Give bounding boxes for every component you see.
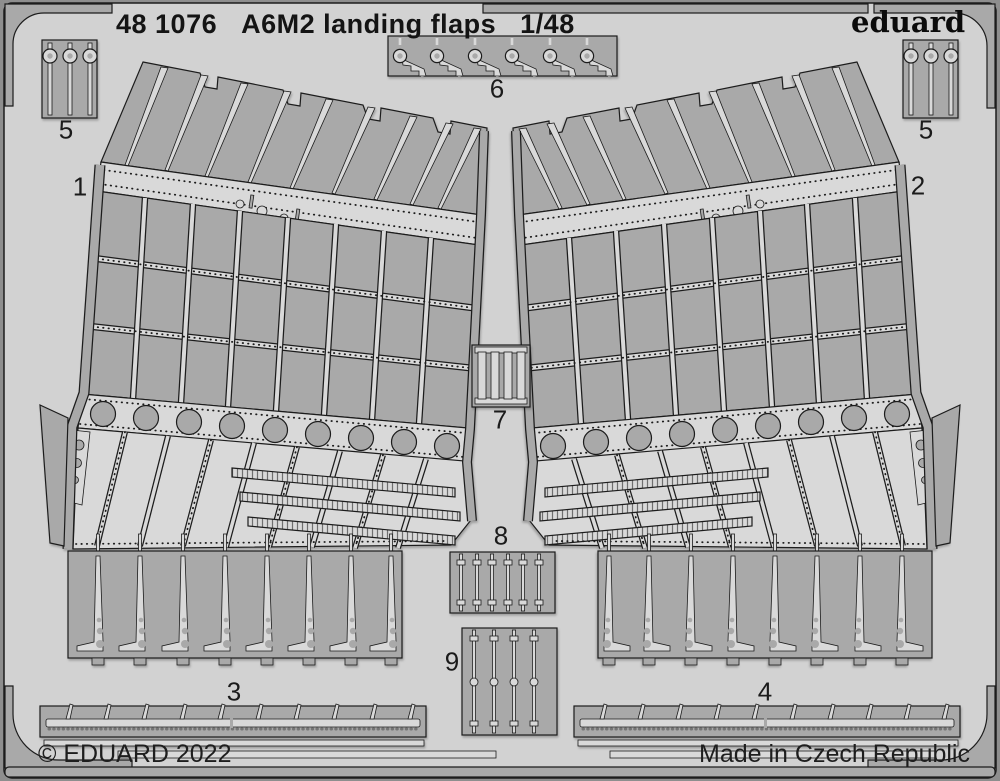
part-9-pins: [462, 628, 557, 735]
pe-sheet-artwork: [0, 0, 1000, 781]
part-5-right: [903, 40, 958, 118]
part-label-3: 3: [212, 677, 256, 708]
part-label-7: 7: [478, 405, 522, 436]
part-5-left: [42, 40, 97, 118]
sheet-title: A6M2 landing flaps: [241, 9, 496, 40]
sheet-header: 48 1076 A6M2 landing flaps 1/48: [116, 9, 575, 40]
sheet-scale: 1/48: [520, 9, 575, 40]
part-label-6: 6: [475, 74, 519, 105]
part-7-strips: [472, 345, 530, 407]
part-8-pins: [450, 552, 555, 613]
part-label-2: 2: [896, 171, 940, 202]
eduard-logo: eduard: [851, 5, 965, 39]
part-label-8: 8: [479, 521, 523, 552]
catalog-number: 48 1076: [116, 9, 217, 40]
part-label-1: 1: [58, 172, 102, 203]
made-in-text: Made in Czech Republic: [699, 740, 970, 769]
part-label-9: 9: [430, 647, 474, 678]
part-6-hinge-brackets: [388, 36, 617, 77]
pe-sheet-photo: 48 1076 A6M2 landing flaps 1/48 eduard ©…: [0, 0, 1000, 781]
part-label-5-right: 5: [904, 115, 948, 146]
part-label-4: 4: [743, 677, 787, 708]
part-label-5-left: 5: [44, 115, 88, 146]
copyright-text: © EDUARD 2022: [38, 740, 232, 769]
